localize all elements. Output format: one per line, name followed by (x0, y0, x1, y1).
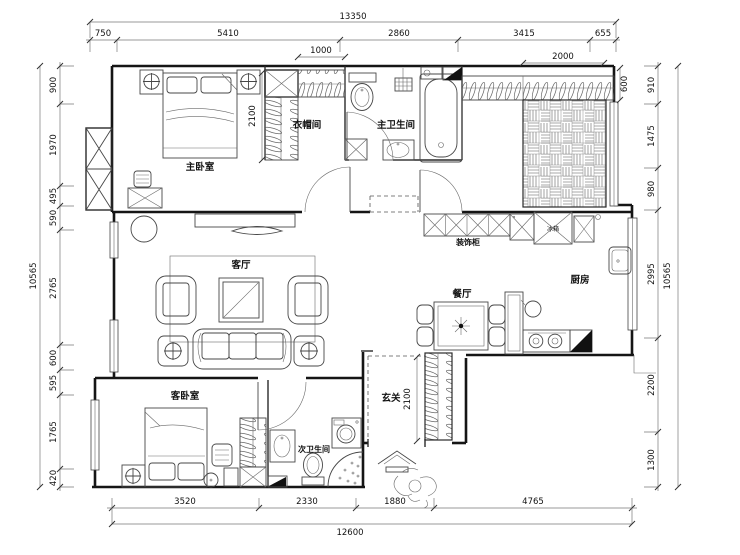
dim-left-seg-0: 900 (49, 77, 59, 93)
dim-bottom-seg-0: 3520 (174, 497, 196, 507)
dim-top-closet-depth: 600 (620, 76, 630, 92)
label-living-room: 客厅 (230, 259, 251, 271)
dim-left-total: 10565 (29, 262, 39, 289)
dim-left-seg-7: 1765 (49, 421, 59, 443)
label-master-bedroom: 主卧室 (186, 161, 215, 173)
dim-top-seg-1: 5410 (217, 29, 239, 39)
dim-right-total: 10565 (663, 262, 673, 289)
floor-plan-canvas: 主卧室 衣帽间 主卫生间 客厅 餐厅 厨房 玄关 客卧室 次卫生间 装饰柜 冰箱… (0, 0, 740, 555)
dim-top-seg-2: 2860 (388, 29, 410, 39)
label-entry: 玄关 (381, 392, 401, 404)
dim-left-seg-2: 495 (49, 188, 59, 204)
label-guest-bedroom: 客卧室 (170, 390, 200, 402)
dim-cloakroom-width: 1000 (310, 46, 332, 56)
dim-bottom-seg-2: 1880 (384, 497, 406, 507)
dim-top-total: 13350 (339, 12, 366, 22)
label-fridge: 冰箱 (547, 225, 559, 233)
dim-top-closet-width: 2000 (552, 52, 574, 62)
dim-right-seg-0: 910 (647, 77, 657, 93)
dim-bottom-seg-1: 2330 (296, 497, 318, 507)
label-master-bathroom: 主卫生间 (377, 119, 415, 131)
entry-closet (425, 353, 452, 440)
label-second-bathroom: 次卫生间 (298, 444, 330, 454)
storage-block (523, 100, 606, 207)
dim-left-seg-8: 420 (49, 470, 59, 486)
dim-bottom-seg-3: 4765 (522, 497, 544, 507)
dim-left-seg-6: 595 (49, 375, 59, 391)
dim-top-seg-3: 3415 (513, 29, 535, 39)
floor-plan: 主卧室 衣帽间 主卫生间 客厅 餐厅 厨房 玄关 客卧室 次卫生间 装饰柜 冰箱… (0, 0, 740, 555)
dim-entry-depth: 2100 (403, 388, 413, 410)
dim-left-seg-1: 1970 (49, 134, 59, 156)
dim-right-seg-4: 2200 (647, 374, 657, 396)
label-dining-room: 餐厅 (451, 288, 472, 300)
dim-left-seg-4: 2765 (49, 277, 59, 299)
cloakroom-top-closet (298, 70, 345, 97)
dim-right-seg-5: 1300 (647, 449, 657, 471)
label-kitchen: 厨房 (570, 274, 589, 286)
label-cloakroom: 衣帽间 (293, 119, 322, 131)
dim-master-bed-width: 2100 (248, 105, 258, 127)
dim-right-seg-1: 1475 (647, 125, 657, 147)
dim-bottom-total: 12600 (336, 528, 363, 538)
dim-top-seg-0: 750 (95, 29, 111, 39)
dim-right-seg-3: 2995 (647, 263, 657, 285)
dim-left-seg-5: 600 (49, 350, 59, 366)
dim-top-seg-4: 655 (595, 29, 611, 39)
label-decorative-cabinet: 装饰柜 (455, 237, 480, 247)
dim-left-seg-3: 590 (49, 210, 59, 226)
dim-right-seg-2: 980 (647, 181, 657, 197)
